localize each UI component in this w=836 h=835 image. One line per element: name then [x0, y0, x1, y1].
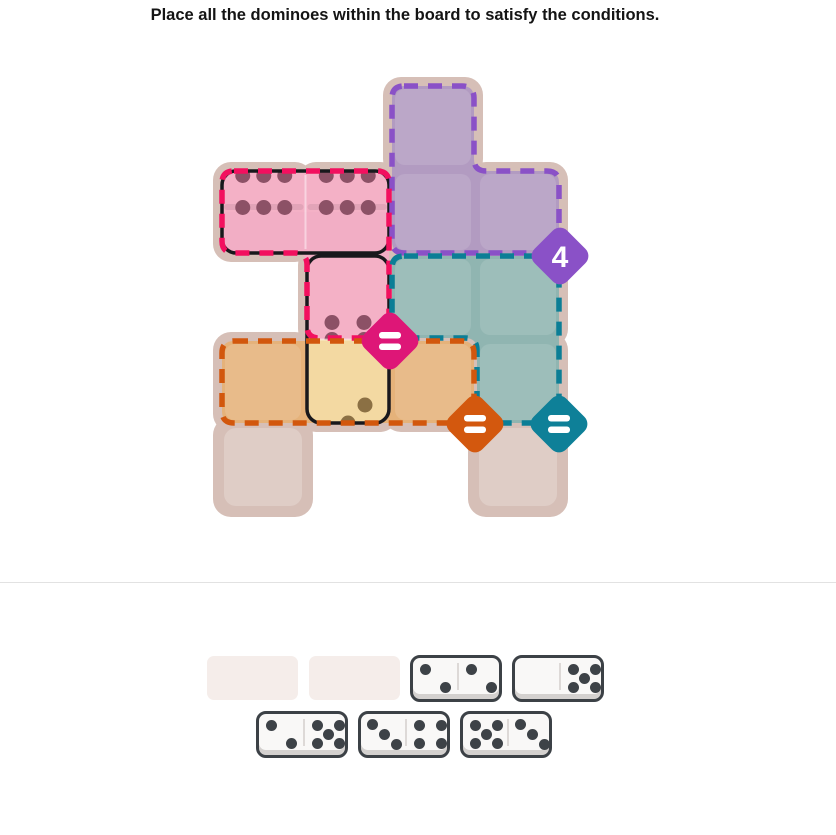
pip: [492, 720, 503, 731]
tray-domino-3-4[interactable]: [358, 711, 450, 758]
pip: [319, 200, 334, 215]
pip: [312, 720, 323, 731]
pip: [334, 720, 345, 731]
domino-divider: [507, 719, 509, 746]
tray-domino-5-3[interactable]: [460, 711, 552, 758]
tray-domino-2-2[interactable]: [410, 655, 502, 702]
pip: [466, 664, 477, 675]
tray-domino-0-5[interactable]: [512, 655, 604, 702]
pip: [492, 738, 503, 749]
pip: [334, 738, 345, 749]
pip: [256, 200, 271, 215]
tray-slot-empty: [207, 656, 298, 700]
pip: [470, 738, 481, 749]
pip: [266, 720, 277, 731]
pips-puzzle-page: Place all the dominoes within the board …: [0, 0, 836, 835]
pip: [486, 682, 497, 693]
pip: [357, 315, 372, 330]
pip: [361, 200, 376, 215]
board-cell: [395, 259, 471, 335]
pip: [340, 200, 355, 215]
pip: [324, 434, 339, 449]
pip: [590, 682, 601, 693]
pip: [590, 664, 601, 675]
pip: [436, 738, 447, 749]
board-cell-empty: [224, 428, 302, 506]
pip: [367, 719, 378, 730]
pip: [515, 719, 526, 730]
domino-divider: [457, 663, 459, 690]
tray-domino-2-5[interactable]: [256, 711, 348, 758]
domino-divider: [559, 663, 561, 690]
pip: [325, 315, 340, 330]
pip: [436, 720, 447, 731]
board-cell: [480, 174, 556, 250]
pip: [286, 738, 297, 749]
pip: [440, 682, 451, 693]
pip: [323, 729, 334, 740]
pip: [481, 729, 492, 740]
pip: [391, 739, 402, 750]
puzzle-board: 4: [0, 0, 836, 600]
pip: [414, 738, 425, 749]
board-cell: [225, 344, 301, 420]
pip: [379, 729, 390, 740]
pip: [579, 673, 590, 684]
tray-slot-empty: [309, 656, 400, 700]
pip: [539, 739, 550, 750]
pip: [470, 720, 481, 731]
pip: [358, 398, 373, 413]
domino-divider: [405, 719, 407, 746]
pip: [414, 720, 425, 731]
pip: [420, 664, 431, 675]
domino-divider: [303, 719, 305, 746]
section-divider: [0, 582, 836, 583]
pip: [568, 682, 579, 693]
pip: [312, 738, 323, 749]
pip: [235, 200, 250, 215]
pip: [527, 729, 538, 740]
badge-label: 4: [552, 241, 569, 274]
pip: [568, 664, 579, 675]
board-cell: [395, 89, 471, 165]
pip: [277, 200, 292, 215]
board-cell: [395, 174, 471, 250]
placed-domino-6-3[interactable]: [307, 256, 389, 507]
